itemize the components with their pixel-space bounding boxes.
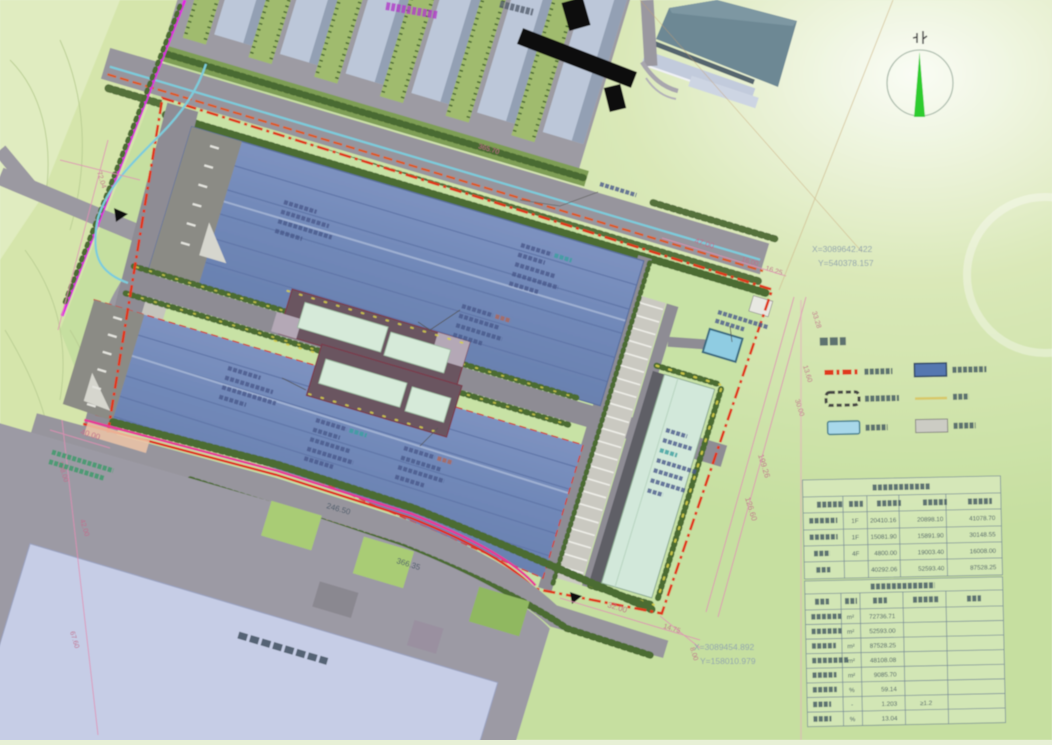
svg-text:m²: m² — [847, 614, 854, 621]
svg-text:30148.55: 30148.55 — [969, 531, 996, 539]
svg-text:20898.10: 20898.10 — [917, 516, 944, 524]
svg-text:1F: 1F — [852, 534, 860, 541]
svg-text:%: % — [849, 687, 855, 694]
svg-text:1.203: 1.203 — [881, 701, 897, 708]
svg-text:4F: 4F — [852, 551, 860, 558]
svg-text:-: - — [851, 702, 853, 709]
svg-text:Y=540378.157: Y=540378.157 — [818, 258, 874, 268]
svg-text:72736.71: 72736.71 — [869, 613, 896, 621]
svg-text:X=3089642.422: X=3089642.422 — [812, 244, 873, 254]
svg-text:59.14: 59.14 — [881, 686, 897, 693]
svg-text:m²: m² — [848, 658, 855, 665]
svg-text:48108.08: 48108.08 — [870, 657, 897, 665]
svg-text:19003.40: 19003.40 — [918, 549, 945, 557]
svg-text:41078.70: 41078.70 — [969, 515, 996, 523]
svg-text:15081.90: 15081.90 — [870, 533, 897, 541]
svg-text:Y=158010.979: Y=158010.979 — [700, 656, 756, 666]
svg-text:15891.90: 15891.90 — [917, 532, 944, 540]
svg-text:9085.70: 9085.70 — [874, 671, 897, 678]
svg-text:m²: m² — [848, 672, 855, 679]
svg-text:20410.16: 20410.16 — [870, 517, 897, 525]
svg-text:m²: m² — [847, 643, 854, 650]
svg-text:40292.06: 40292.06 — [871, 566, 898, 574]
svg-text:X=3089454.892: X=3089454.892 — [694, 642, 755, 652]
svg-text:87528.25: 87528.25 — [870, 642, 897, 650]
svg-text:16008.00: 16008.00 — [970, 548, 997, 556]
svg-text:4800.00: 4800.00 — [874, 550, 897, 557]
svg-text:1F: 1F — [851, 518, 859, 525]
svg-text:≥1.2: ≥1.2 — [920, 700, 933, 707]
svg-text:m²: m² — [847, 629, 854, 636]
svg-text:52593.00: 52593.00 — [869, 628, 896, 636]
svg-text:52593.40: 52593.40 — [918, 565, 945, 573]
svg-text:87528.25: 87528.25 — [970, 564, 997, 572]
svg-text:%: % — [850, 716, 856, 723]
svg-text:13.04: 13.04 — [882, 715, 898, 722]
